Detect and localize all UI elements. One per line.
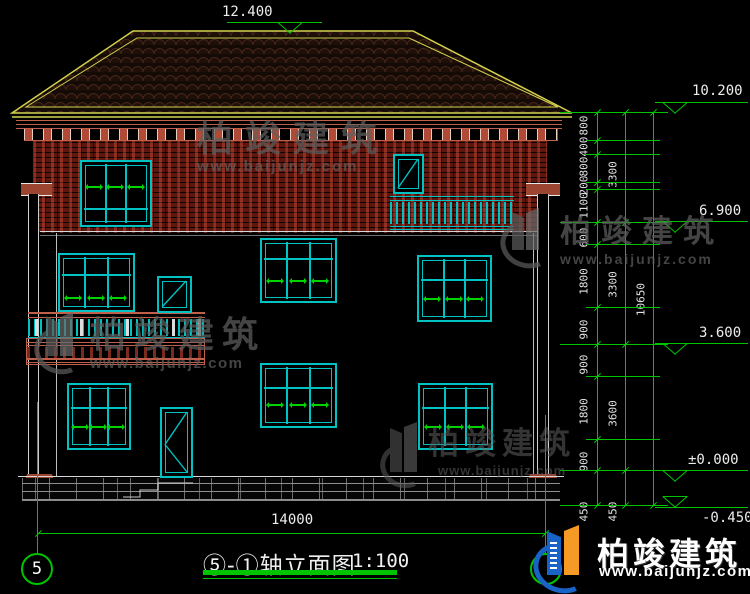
dim-chain-line <box>625 112 626 505</box>
window-opening-arrow <box>108 426 124 428</box>
bottom-dim-line <box>38 533 545 534</box>
window-mullion <box>107 387 109 446</box>
window-opening-arrow <box>467 298 483 300</box>
window-opening-arrow <box>128 186 144 188</box>
footer-logo-icon <box>531 523 597 587</box>
balcony-railing-3f <box>390 196 514 231</box>
elevation-label: ±0.000 <box>688 452 739 468</box>
window-mullion <box>464 259 466 318</box>
window-transom <box>264 387 333 389</box>
window-inner-frame <box>423 388 488 445</box>
dim-extension-line <box>586 307 660 308</box>
window <box>67 383 131 450</box>
balcony-slab-2f <box>26 338 205 365</box>
window-opening-arrow <box>65 297 81 299</box>
dim-extension-line <box>560 344 668 345</box>
window-transom <box>71 407 127 409</box>
elevation-marker-triangle <box>663 343 687 354</box>
window <box>58 253 135 312</box>
dim-extension-line <box>560 505 668 506</box>
door <box>393 154 424 194</box>
dim-chain-line <box>653 112 654 505</box>
axis-bubble-left: 5 <box>21 553 53 585</box>
bottom-dim-text: 14000 <box>271 512 313 528</box>
elevation-label: 12.400 <box>222 4 273 20</box>
door <box>157 276 192 313</box>
window-inner-frame <box>265 368 332 423</box>
window-inner-frame <box>85 165 147 222</box>
elevation-marker-triangle <box>663 496 687 507</box>
window-transom <box>62 274 131 276</box>
window-opening-arrow <box>468 426 484 428</box>
dim-extension-line <box>560 222 668 223</box>
window-opening-arrow <box>86 186 102 188</box>
window <box>418 383 493 450</box>
cad-elevation-drawing: 14000 5 ⑤-①轴立面图 1:100 柏竣建筑 www.baijunjz.… <box>0 0 750 594</box>
drawing-scale: 1:100 <box>352 550 409 572</box>
window-opening-arrow <box>290 280 306 282</box>
window-mullion <box>105 164 107 223</box>
elevation-marker-triangle <box>663 470 687 481</box>
footer-site-text: www.baijunjz.com <box>599 563 750 580</box>
window-opening-arrow <box>446 298 462 300</box>
window-opening-arrow <box>267 404 283 406</box>
window-inner-frame <box>422 260 487 317</box>
window-opening-arrow <box>290 404 306 406</box>
window-transom <box>421 279 488 281</box>
window <box>260 363 337 428</box>
dim-extension-line <box>586 154 660 155</box>
elevation-marker-line <box>655 507 748 508</box>
title-underline-thick <box>203 570 397 575</box>
elevation-label: 10.200 <box>692 83 743 99</box>
window-opening-arrow <box>447 426 463 428</box>
dim-label: 3300 <box>607 255 620 315</box>
dim-label: 3600 <box>607 384 620 444</box>
door-swing-lines <box>159 278 194 315</box>
window-mullion <box>443 259 445 318</box>
window-mullion <box>465 387 467 446</box>
dim-label: 10650 <box>635 270 648 330</box>
window-inner-frame <box>63 258 130 307</box>
window-opening-arrow <box>312 280 328 282</box>
dim-extension-line <box>586 439 660 440</box>
dim-extension-line <box>560 470 668 471</box>
window-mullion <box>309 242 311 299</box>
axis-line-left <box>37 402 38 553</box>
elevation-marker-triangle <box>663 102 687 113</box>
window-opening-arrow <box>88 297 104 299</box>
window-opening-arrow <box>110 297 126 299</box>
window-opening-arrow <box>312 404 328 406</box>
window <box>417 255 492 322</box>
window-transom <box>264 258 333 260</box>
dim-extension-line <box>586 244 660 245</box>
elevation-marker-triangle <box>278 22 302 33</box>
dim-extension-line <box>586 189 660 190</box>
window-opening-arrow <box>267 280 283 282</box>
elevation-label: -0.450 <box>702 510 750 526</box>
door <box>160 407 193 478</box>
window-mullion <box>89 387 91 446</box>
window-inner-frame <box>72 388 126 445</box>
window-mullion <box>309 367 311 424</box>
window-mullion <box>286 242 288 299</box>
elevation-marker-triangle <box>663 221 687 232</box>
window-opening-arrow <box>425 426 441 428</box>
window-opening-arrow <box>424 298 440 300</box>
window <box>260 238 337 303</box>
window-transom <box>422 407 489 409</box>
window-transom <box>84 208 148 210</box>
window <box>80 160 152 227</box>
window-mullion <box>286 367 288 424</box>
door-swing-lines <box>162 409 195 480</box>
window-mullion <box>444 387 446 446</box>
dim-extension-line <box>586 140 660 141</box>
door-swing-lines <box>395 156 426 196</box>
elevation-marker-line <box>227 22 322 23</box>
elevation-label: 6.900 <box>699 203 741 219</box>
elevation-label: 3.600 <box>699 325 741 341</box>
window-opening-arrow <box>107 186 123 188</box>
balcony-railing-2f <box>28 312 205 338</box>
window-inner-frame <box>265 243 332 298</box>
window-mullion <box>125 164 127 223</box>
title-underline-thin <box>203 578 397 579</box>
dim-extension-line <box>586 182 660 183</box>
dim-extension-line <box>586 376 660 377</box>
dim-extension-line <box>560 112 668 113</box>
